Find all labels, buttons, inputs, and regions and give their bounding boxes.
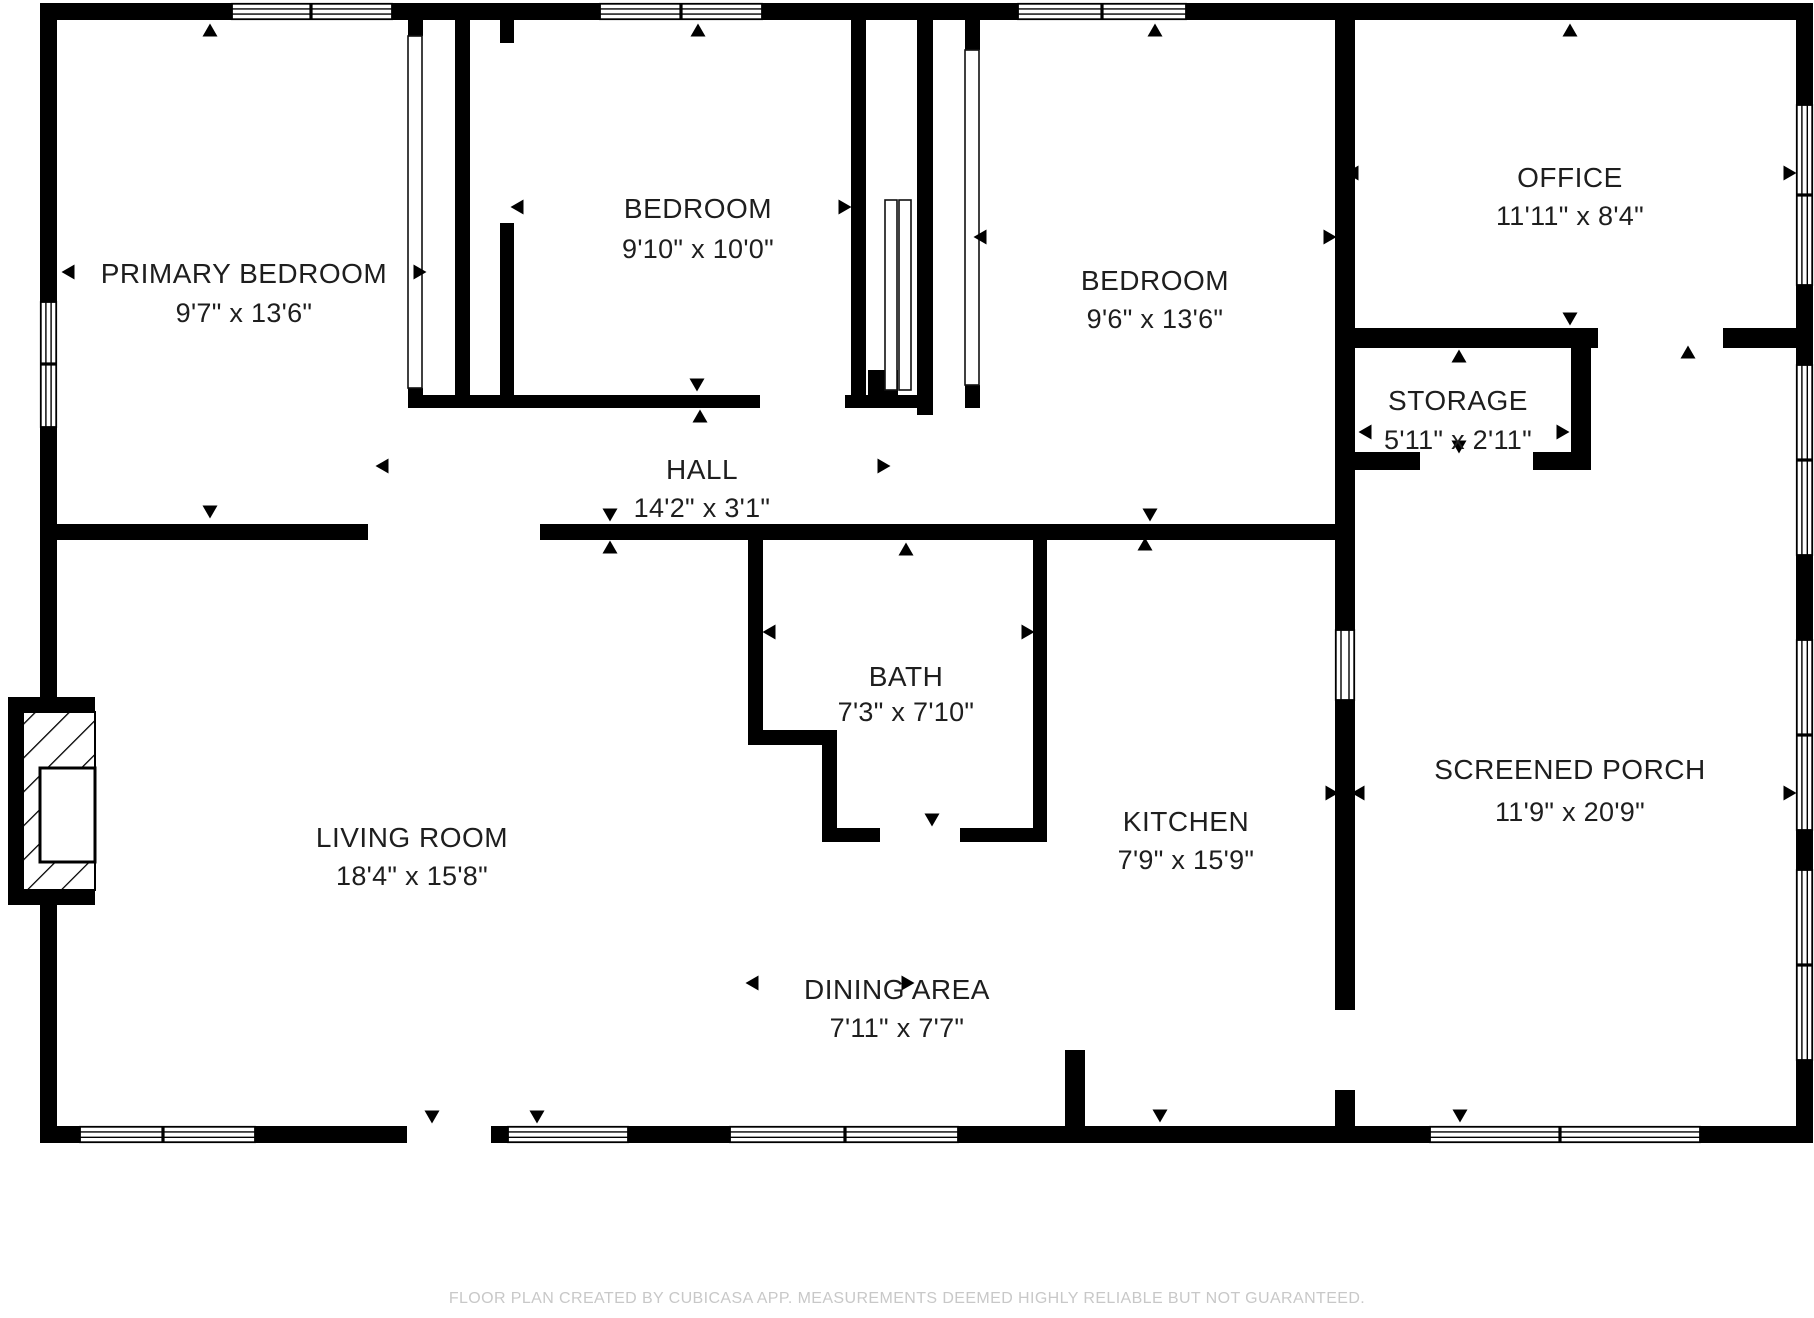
window-porch-right-2 (1797, 640, 1812, 830)
room-dims-bath: 7'3" x 7'10" (838, 697, 975, 727)
wall-divider-east (540, 524, 1335, 540)
wall-porch-left-upper (1335, 524, 1355, 630)
wall-closet-b-stub-bottom (965, 385, 980, 408)
window-porch-right-3 (1797, 870, 1812, 1060)
room-dims-kitchen: 7'9" x 15'9" (1118, 845, 1255, 875)
wall-closet-a-stub-bottom (408, 388, 423, 408)
room-dims-screened-porch: 11'9" x 20'9" (1495, 797, 1645, 827)
wall-closet-b-stub-top (965, 16, 980, 50)
window-primary-left (41, 302, 56, 427)
room-dims-bedroom-2: 9'6" x 13'6" (1087, 304, 1224, 334)
wall-closet-b-left (851, 16, 866, 395)
room-dims-hall: 14'2" x 3'1" (634, 493, 771, 523)
wall-closet-a-center (455, 16, 470, 408)
window-bedroom2 (1018, 4, 1186, 19)
wall-storage-bottom-east (1533, 452, 1591, 470)
room-label-screened-porch: SCREENED PORCH (1434, 754, 1705, 785)
window-bedroom1 (600, 4, 762, 19)
closet-door-panel (899, 200, 911, 390)
room-label-bath: BATH (869, 661, 944, 692)
room-label-kitchen: KITCHEN (1123, 806, 1249, 837)
wall-divider-west (57, 524, 368, 540)
room-dims-office: 11'11" x 8'4" (1496, 201, 1644, 231)
room-label-primary-bedroom: PRIMARY BEDROOM (101, 258, 388, 289)
room-label-office: OFFICE (1517, 162, 1623, 193)
window-porch-bottom (1430, 1127, 1700, 1142)
room-dims-living-room: 18'4" x 15'8" (336, 861, 488, 891)
window-porch-right-1 (1797, 365, 1812, 555)
wall-storage-right (1571, 348, 1591, 470)
closet-door-panel (408, 36, 422, 388)
wall-bath-alcove-v (822, 745, 837, 842)
wall-bath-alcove-h (748, 730, 837, 745)
door-opening (407, 1125, 491, 1144)
wall-bedroom2-right (1335, 16, 1355, 524)
room-dims-bedroom-1: 9'10" x 10'0" (622, 234, 774, 264)
window-frame (508, 1127, 628, 1142)
window-living-bottom (80, 1127, 255, 1142)
wall-closet-a-right-top (500, 16, 514, 43)
room-label-bedroom-1: BEDROOM (624, 193, 772, 224)
room-dims-primary-bedroom: 9'7" x 13'6" (176, 298, 313, 328)
closet-door-panel (885, 200, 897, 390)
fireplace (8, 697, 95, 905)
wall-bath-right (1033, 540, 1047, 842)
wall-closet-a-stub-top (408, 16, 423, 36)
window-frame (80, 1127, 255, 1142)
footer-disclaimer: FLOOR PLAN CREATED BY CUBICASA APP. MEAS… (449, 1290, 1365, 1307)
wall-office-bottom-west (1355, 328, 1598, 348)
window-kitchen-porch (1336, 630, 1354, 700)
room-label-dining-area: DINING AREA (804, 974, 990, 1005)
room-label-hall: HALL (666, 454, 738, 485)
wall-porch-left-lower (1335, 1090, 1355, 1126)
room-dims-storage: 5'11" x 2'11" (1384, 425, 1532, 455)
closet-door-panel (965, 50, 979, 385)
exterior-door-bottom (407, 1125, 491, 1144)
room-label-storage: STORAGE (1388, 385, 1528, 416)
window-dining-bottom-1 (508, 1127, 628, 1142)
room-label-living-room: LIVING ROOM (316, 822, 508, 853)
window-frame (1336, 630, 1354, 700)
room-label-bedroom-2: BEDROOM (1081, 265, 1229, 296)
window-dining-bottom-2 (730, 1127, 958, 1142)
firebox (40, 768, 95, 862)
wall-left-lower (40, 897, 57, 1143)
wall-closet-b-center (917, 16, 933, 415)
wall-kitchen-stub (1065, 1050, 1085, 1126)
wall-porch-left-mid (1335, 700, 1355, 1010)
window-frame (1430, 1127, 1700, 1142)
wall-bath-left (748, 540, 763, 730)
floor-plan-canvas: PRIMARY BEDROOM 9'7" x 13'6" BEDROOM 9'1… (0, 0, 1814, 1318)
plan-background (0, 0, 1814, 1318)
room-dims-dining-area: 7'11" x 7'7" (830, 1013, 965, 1043)
wall-office-bottom-east (1723, 328, 1796, 348)
wall-bath-bottom-west (837, 828, 880, 842)
window-primary-bedroom (232, 4, 392, 19)
wall-closet-a-right-bottom (500, 223, 514, 395)
window-office-right (1797, 105, 1812, 285)
